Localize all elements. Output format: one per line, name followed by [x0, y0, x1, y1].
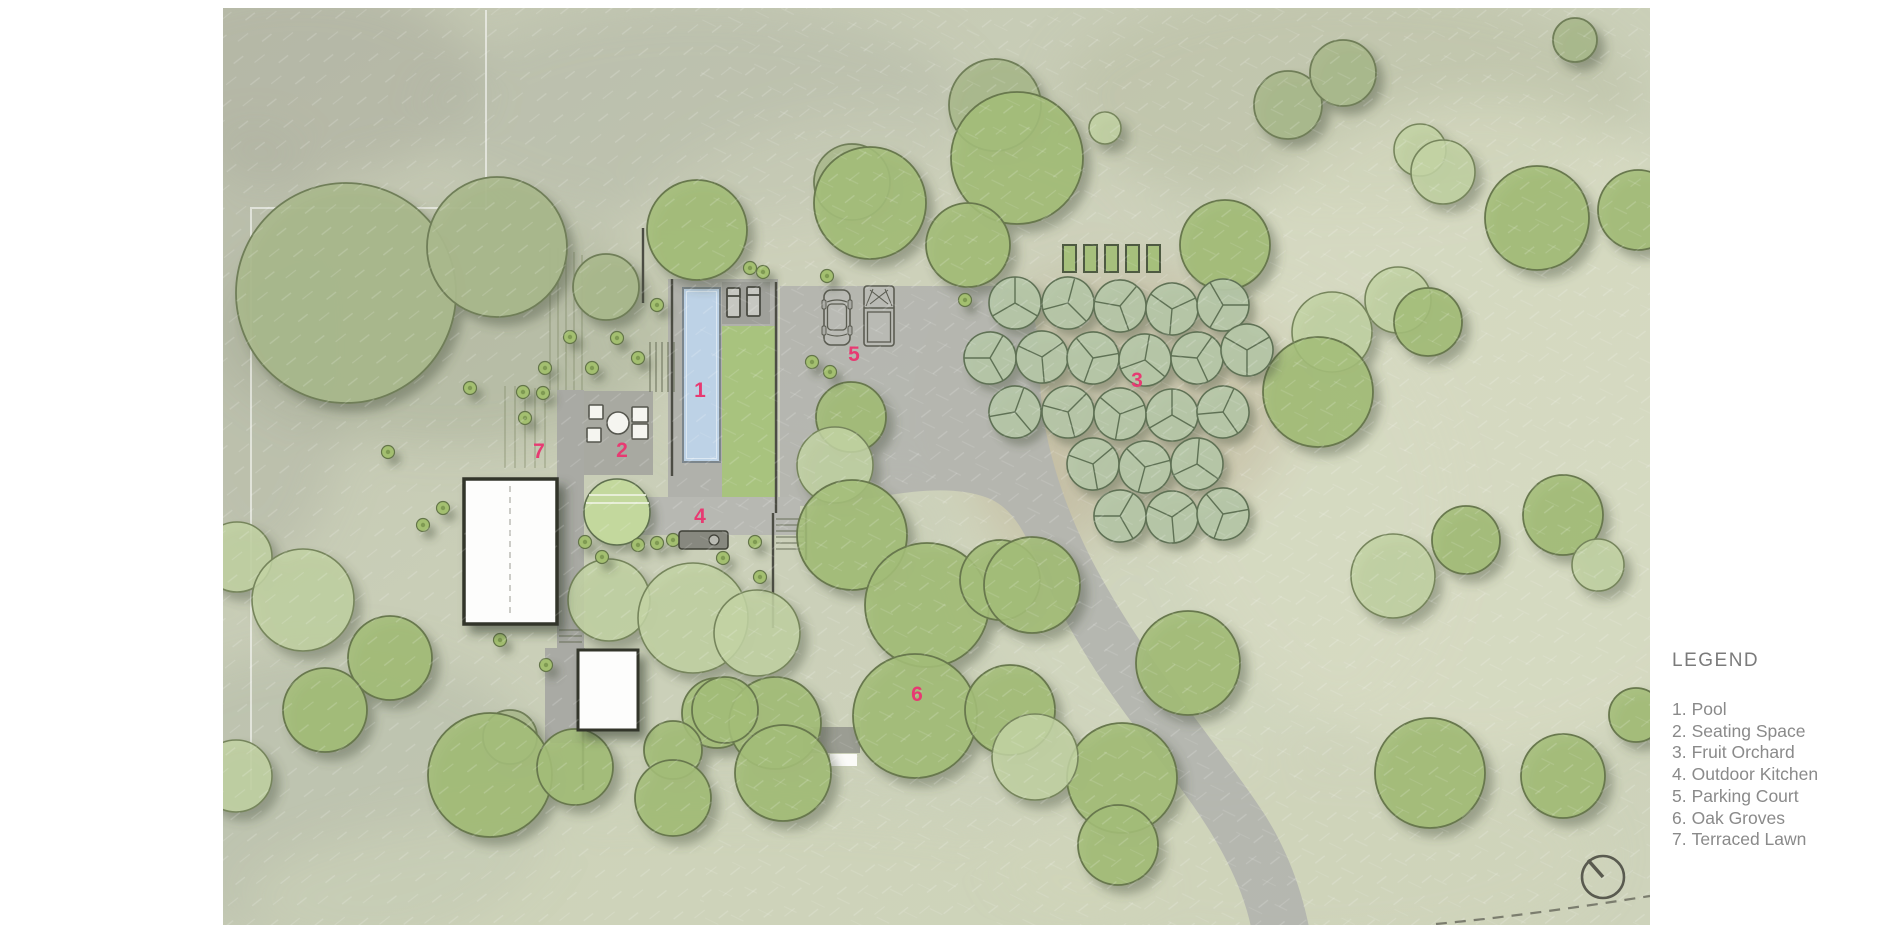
marker-seating-space: 2: [616, 439, 628, 462]
legend-item-fruit-orchard: 3.Fruit Orchard: [1672, 742, 1818, 764]
legend-item-label: Oak Groves: [1692, 808, 1785, 828]
legend-item-number: 1.: [1672, 699, 1687, 721]
marker-terraced-lawn: 7: [533, 440, 545, 463]
legend-item-label: Outdoor Kitchen: [1692, 764, 1818, 784]
legend-item-number: 2.: [1672, 721, 1687, 743]
hatch-texture-2: [700, 8, 1650, 925]
legend-item-number: 4.: [1672, 764, 1687, 786]
legend-item-pool: 1.Pool: [1672, 699, 1818, 721]
legend-item-seating-space: 2.Seating Space: [1672, 721, 1818, 743]
site-plan-drawing: 1 2 3 4 5 6 7: [0, 0, 1900, 927]
legend-item-label: Fruit Orchard: [1692, 742, 1795, 762]
legend-item-label: Seating Space: [1692, 721, 1806, 741]
legend-panel: LEGEND 1.Pool 2.Seating Space 3.Fruit Or…: [1672, 650, 1818, 851]
marker-fruit-orchard: 3: [1131, 369, 1143, 392]
plan-area: 1 2 3 4 5 6 7: [100, 0, 1800, 927]
marker-outdoor-kitchen: 4: [694, 505, 706, 528]
legend-item-parking-court: 5.Parking Court: [1672, 786, 1818, 808]
legend-item-label: Parking Court: [1692, 786, 1799, 806]
legend-title: LEGEND: [1672, 650, 1818, 672]
legend-item-outdoor-kitchen: 4.Outdoor Kitchen: [1672, 764, 1818, 786]
marker-oak-groves: 6: [911, 683, 923, 706]
legend-item-terraced-lawn: 7.Terraced Lawn: [1672, 829, 1818, 851]
legend-item-label: Pool: [1692, 699, 1727, 719]
site-plan-page: 1 2 3 4 5 6 7 LEGEND 1.Pool 2.Seating Sp…: [0, 0, 1900, 927]
legend-item-oak-groves: 6.Oak Groves: [1672, 808, 1818, 830]
legend-item-number: 6.: [1672, 808, 1687, 830]
marker-pool: 1: [694, 379, 706, 402]
legend-item-label: Terraced Lawn: [1692, 829, 1807, 849]
legend-item-number: 5.: [1672, 786, 1687, 808]
legend-item-number: 7.: [1672, 829, 1687, 851]
legend-item-number: 3.: [1672, 742, 1687, 764]
marker-parking-court: 5: [848, 343, 860, 366]
legend-items: 1.Pool 2.Seating Space 3.Fruit Orchard 4…: [1672, 699, 1818, 851]
